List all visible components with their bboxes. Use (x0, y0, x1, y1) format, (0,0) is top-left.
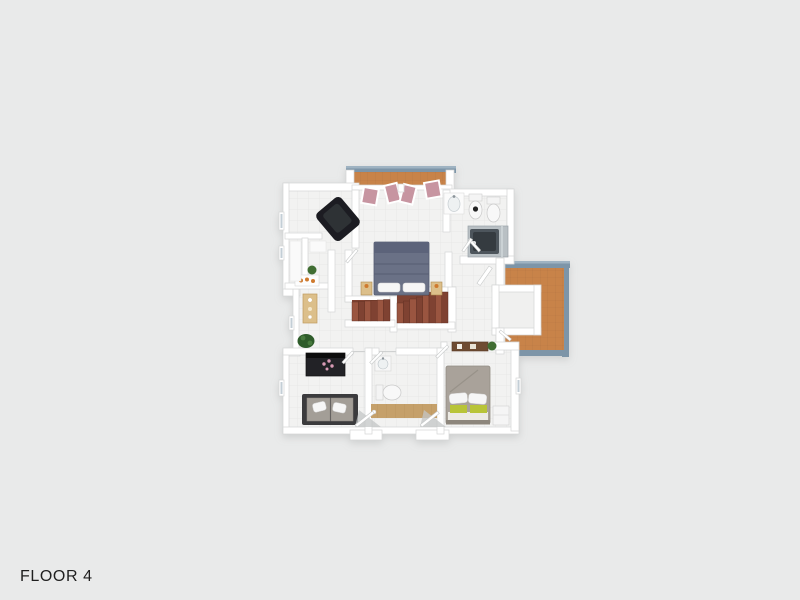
pillow-icon (378, 283, 400, 292)
pillow-icon (403, 283, 425, 292)
guest-bed (446, 366, 490, 425)
stairs-lower-flight (352, 300, 390, 322)
pillow-icon (468, 393, 487, 405)
sofa-icon (302, 394, 358, 425)
plant-icon (308, 266, 317, 275)
plant-icon (298, 334, 315, 348)
pillow-icon (449, 392, 468, 404)
cabinet-icon (493, 406, 509, 425)
blanket-icon (450, 405, 467, 413)
bidet-icon (487, 197, 500, 222)
nightstand-icon (361, 282, 372, 295)
stairs-upper-flight (397, 292, 448, 323)
sink-icon (448, 197, 460, 212)
blanket-icon (470, 405, 487, 413)
toilet-icon (376, 385, 401, 400)
dresser-tv-icon (306, 353, 345, 376)
bathtub-icon (468, 226, 508, 257)
plant-icon (488, 342, 497, 351)
floor-label: FLOOR 4 (20, 568, 93, 586)
floor-plan-viewer: FLOOR 4 (0, 0, 800, 600)
nightstand-icon (431, 282, 442, 295)
toilet-icon (469, 194, 482, 219)
floor-plan (0, 0, 800, 600)
